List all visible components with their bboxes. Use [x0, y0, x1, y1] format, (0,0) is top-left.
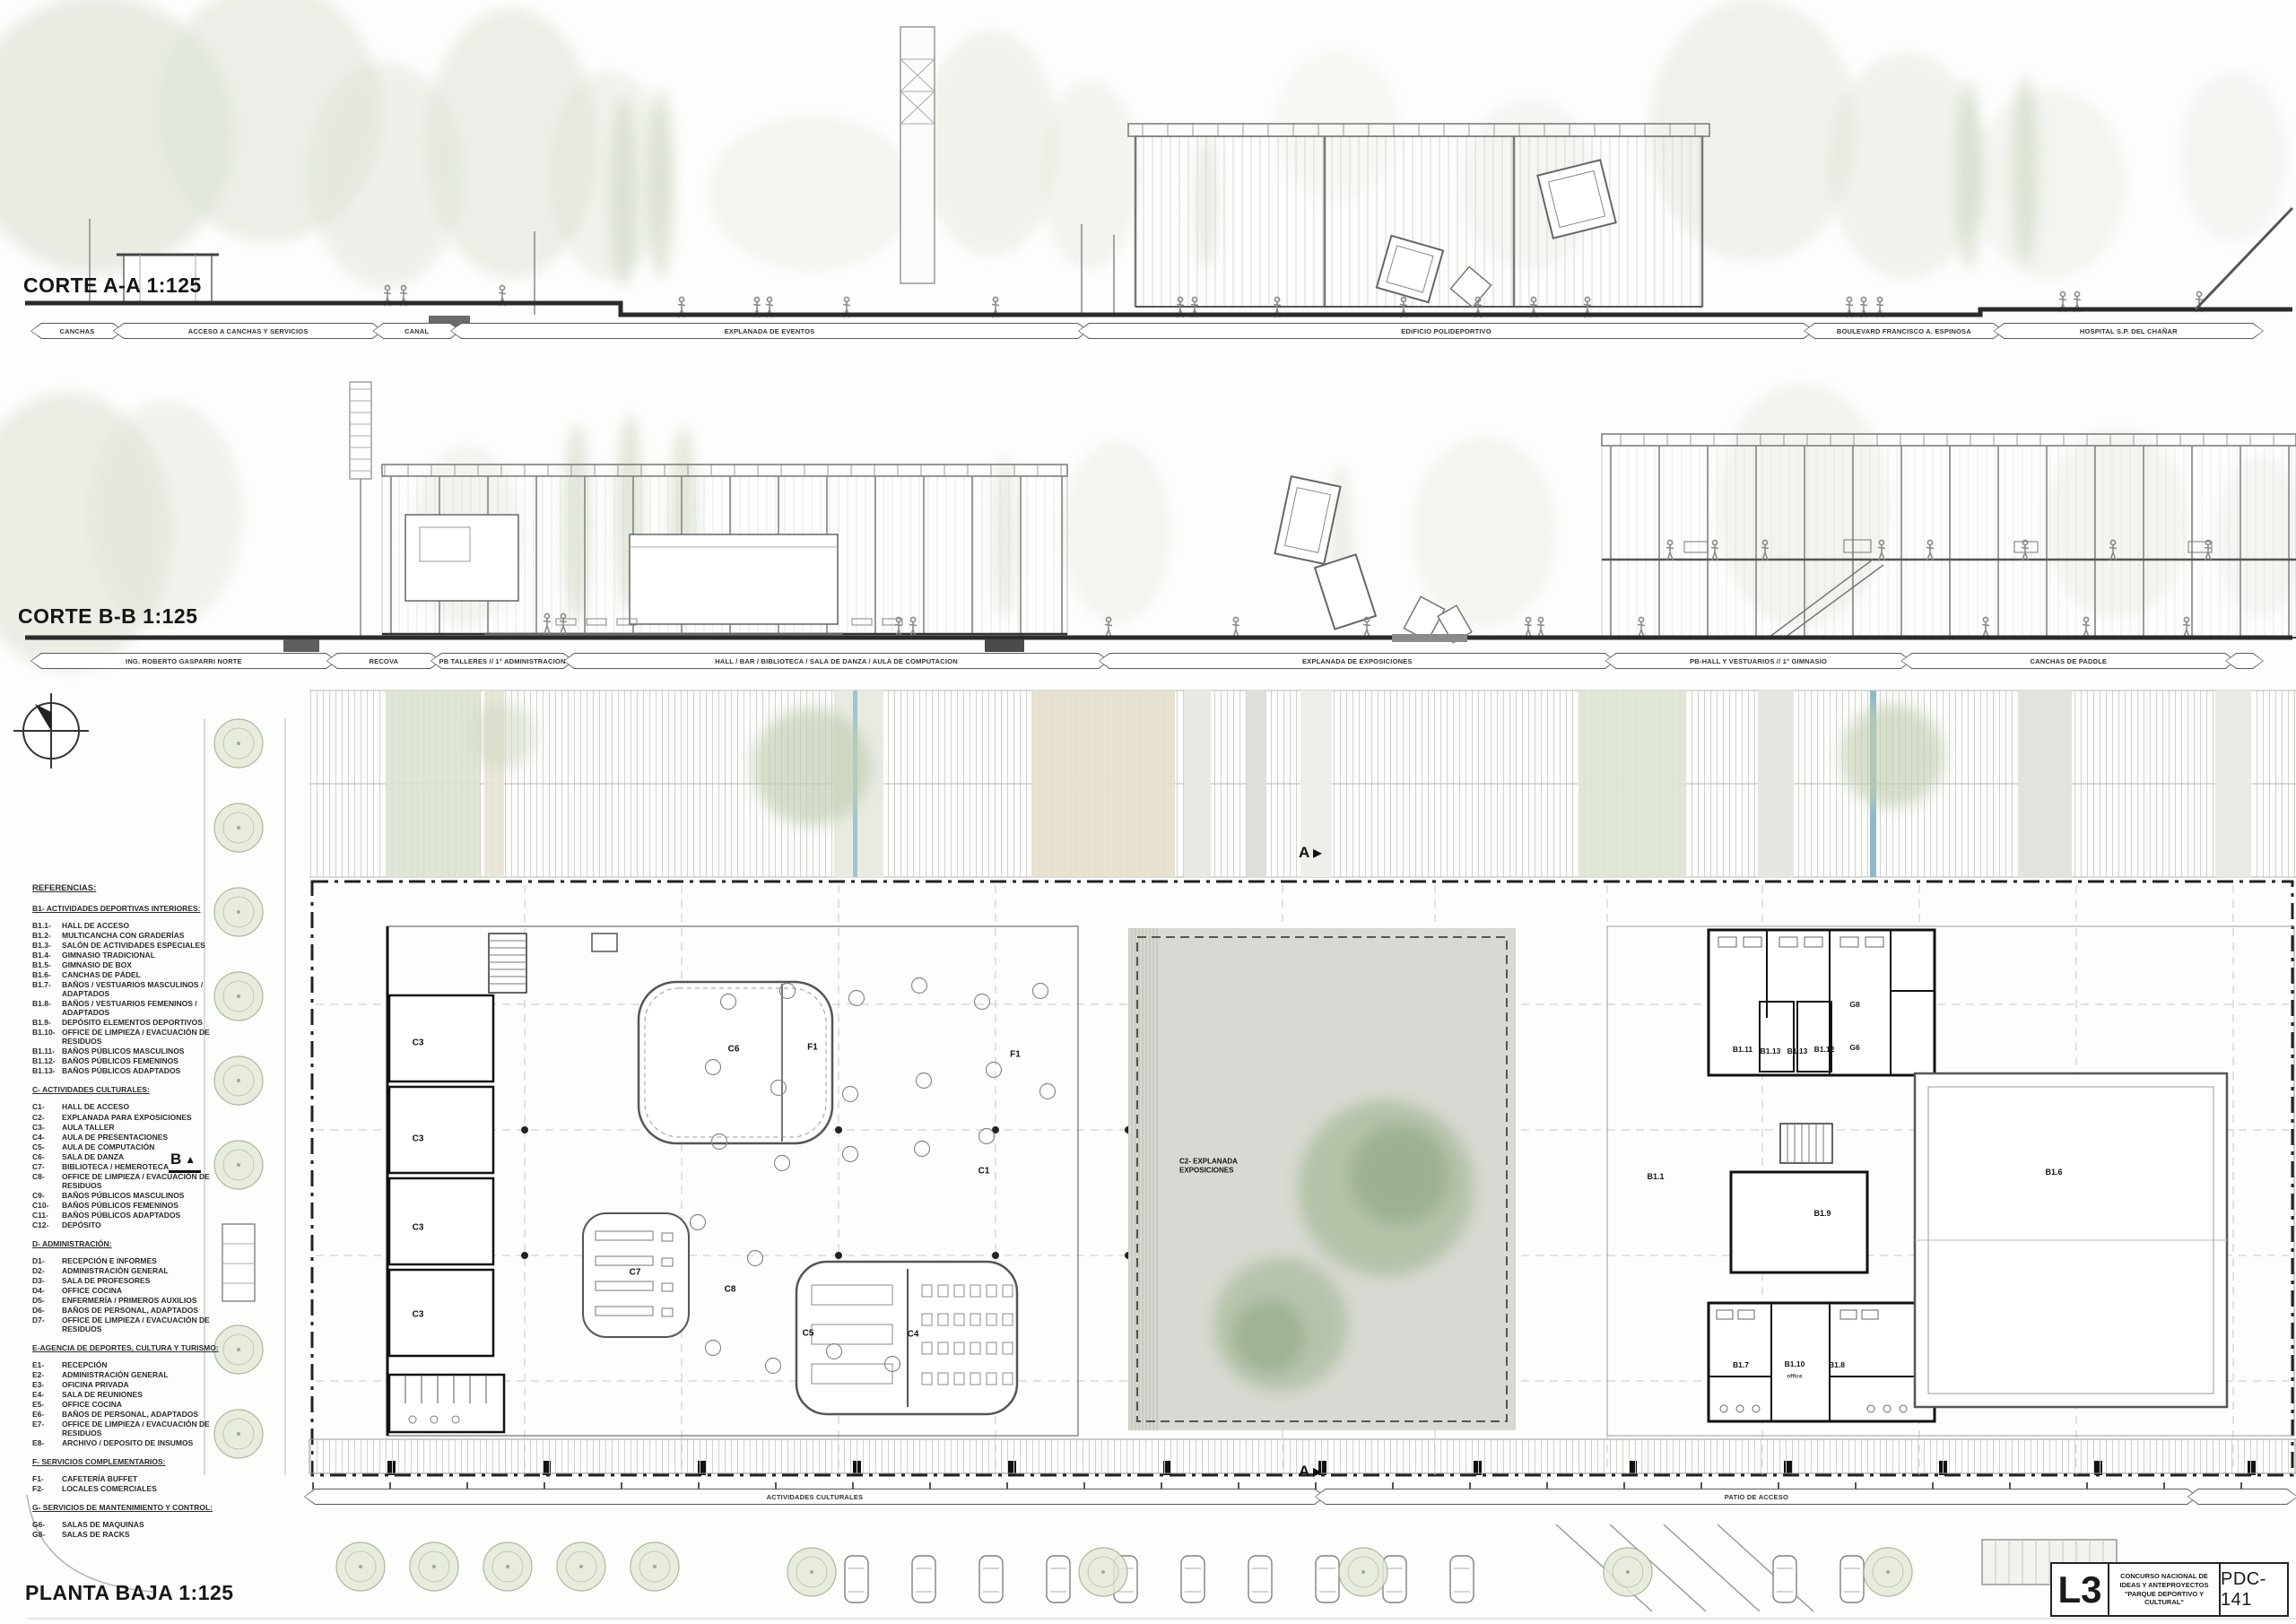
corte-b-drawing [0, 357, 2296, 687]
legend-line: E5-OFFICE COCINA [32, 1400, 222, 1409]
cut-direction-icon: ▶ [1313, 847, 1321, 858]
strip-segment: CANCHAS DE PADDLE [1900, 653, 2236, 669]
sheet-code: L3 [2052, 1564, 2109, 1615]
section-planta-baja: C3C3C3C3C6F1F1C1C7C8C5C4C2- EXPLANADA EX… [0, 686, 2296, 1624]
legend-line: B1.10-OFFICE DE LIMPIEZA / EVACUACIÓN DE… [32, 1028, 222, 1046]
canal-cut-2 [985, 639, 1024, 652]
legend-line: G- SERVICIOS DE MANTENIMIENTO Y CONTROL: [32, 1503, 222, 1512]
corte-b-strip: ING. ROBERTO GASPARRI NORTERECOVAPB TALL… [36, 653, 2258, 669]
plan-strip: ACTIVIDADES CULTURALESPATIO DE ACCESO [309, 1489, 2292, 1505]
sheet-number: PDC-141 [2221, 1564, 2287, 1615]
legend-line: C7-BIBLIOTECA / HEMEROTECA [32, 1162, 222, 1171]
legend-line: B1.4-GIMNASIO TRADICIONAL [32, 951, 222, 960]
legend-line: C11-BAÑOS PÚBLICOS ADAPTADOS [32, 1211, 222, 1220]
corte-a-drawing [0, 0, 2296, 355]
legend-line: E-AGENCIA DE DEPORTES, CULTURA Y TURISMO… [32, 1343, 222, 1352]
legend-line: C6-SALA DE DANZA [32, 1152, 222, 1161]
legend-line: G8-SALAS DE RACKS [32, 1530, 222, 1539]
strip-segment: PB TALLERES // 1° ADMINISTRACION [430, 653, 574, 669]
legend-line: E4-SALA DE REUNIONES [32, 1390, 222, 1399]
strip-segment [2225, 653, 2264, 669]
legend-line: C2-EXPLANADA PARA EXPOSICIONES [32, 1113, 222, 1122]
strip-segment: CANAL [372, 323, 461, 339]
section-cut-marker: A▶ [1299, 844, 1322, 862]
legend-line: C12-DEPÓSITO [32, 1220, 222, 1229]
corte-b-title: CORTE B-B 1:125 [18, 604, 197, 629]
strip-segment: ACCESO A CANCHAS Y SERVICIOS [113, 323, 383, 339]
planta-baja-title: PLANTA BAJA 1:125 [25, 1581, 234, 1605]
title-block: L3 CONCURSO NACIONAL DE IDEAS Y ANTEPROY… [2050, 1562, 2289, 1617]
legend-line: D2-ADMINISTRACIÓN GENERAL [32, 1266, 222, 1275]
legend-line: B1.8-BAÑOS / VESTUARIOS FEMENINOS / ADAP… [32, 999, 222, 1017]
cut-direction-icon: ▶ [1313, 1466, 1321, 1477]
legend-line: D5-ENFERMERÍA / PRIMEROS AUXILIOS [32, 1296, 222, 1305]
legend-line: D3-SALA DE PROFESORES [32, 1276, 222, 1285]
legend-line: REFERENCIAS: [32, 883, 222, 893]
section-corte-b: CORTE B-B 1:125 ING. ROBERTO GASPARRI NO… [0, 357, 2296, 687]
legend-line: C10-BAÑOS PÚBLICOS FEMENINOS [32, 1201, 222, 1210]
legend-line: B1.2-MULTICANCHA CON GRADERÍAS [32, 931, 222, 940]
legend-line: E2-ADMINISTRACIÓN GENERAL [32, 1370, 222, 1379]
pavilion-deportivo [1602, 434, 2296, 638]
strip-segment: CANCHAS [30, 323, 124, 339]
legend-line: F- SERVICIOS COMPLEMENTARIOS: [32, 1457, 222, 1466]
canal-cut [283, 639, 319, 652]
strip-segment: BOULEVARD FRANCISCO A. ESPINOSA [1804, 323, 2004, 339]
strip-segment: RECOVA [326, 653, 441, 669]
strip-segment: PB-HALL Y VESTUARIOS // 1° GIMNASIO [1605, 653, 1912, 669]
legend-line: D1-RECEPCIÓN E INFORMES [32, 1256, 222, 1265]
legend-line: B1.6-CANCHAS DE PÁDEL [32, 970, 222, 979]
section-corte-a: CORTE A-A 1:125 CANCHASACCESO A CANCHAS … [0, 0, 2296, 355]
legend-line: B1- ACTIVIDADES DEPORTIVAS INTERIORES: [32, 904, 222, 913]
legend-line: C5-AULA DE COMPUTACIÓN [32, 1142, 222, 1151]
legend-line: B1.11-BAÑOS PÚBLICOS MASCULINOS [32, 1046, 222, 1055]
legend-line: F2-LOCALES COMERCIALES [32, 1484, 222, 1493]
section-markers: A▶A▶B▲ [0, 686, 2296, 1624]
legend-line: D- ADMINISTRACIÓN: [32, 1239, 222, 1248]
strip-segment: EXPLANADA DE EXPOSICIONES [1099, 653, 1616, 669]
legend-line: C4-AULA DE PRESENTACIONES [32, 1133, 222, 1142]
legend-line: B1.13-BAÑOS PÚBLICOS ADAPTADOS [32, 1066, 222, 1075]
strip-segment: EXPLANADA DE EVENTOS [450, 323, 1089, 339]
legend-line: B1.12-BAÑOS PÚBLICOS FEMENINOS [32, 1056, 222, 1065]
legend-line: G6-SALAS DE MAQUINAS [32, 1520, 222, 1529]
legend-line: C1-HALL DE ACCESO [32, 1102, 222, 1111]
legend-line: D7-OFFICE DE LIMPIEZA / EVACUACIÓN DE RE… [32, 1316, 222, 1333]
legend-line: B1.7-BAÑOS / VESTUARIOS MASCULINOS / ADA… [32, 980, 222, 998]
strip-segment [2187, 1489, 2296, 1505]
strip-segment: HALL / BAR / BIBLIOTECA / SALA DE DANZA … [563, 653, 1109, 669]
project-title: CONCURSO NACIONAL DE IDEAS Y ANTEPROYECT… [2109, 1564, 2221, 1615]
legend-line: E8-ARCHIVO / DEPOSITO DE INSUMOS [32, 1438, 222, 1447]
section-cut-marker: A▶ [1299, 1463, 1322, 1481]
legend-line: D6-BAÑOS DE PERSONAL, ADAPTADOS [32, 1306, 222, 1315]
strip-segment: EDIFICIO POLIDEPORTIVO [1078, 323, 1814, 339]
legend: REFERENCIAS:B1- ACTIVIDADES DEPORTIVAS I… [32, 883, 222, 1540]
legend-line: F1-CAFETERÍA BUFFET [32, 1474, 222, 1483]
strip-segment: ING. ROBERTO GASPARRI NORTE [30, 653, 337, 669]
tower [900, 27, 935, 283]
corte-a-title: CORTE A-A 1:125 [23, 274, 202, 298]
legend-line: E1-RECEPCIÓN [32, 1360, 222, 1369]
drawing-sheet: CORTE A-A 1:125 CANCHASACCESO A CANCHAS … [0, 0, 2296, 1624]
legend-line: B1.5-GIMNASIO DE BOX [32, 960, 222, 969]
legend-line: E3-OFICINA PRIVADA [32, 1380, 222, 1389]
strip-segment: ACTIVIDADES CULTURALES [304, 1489, 1326, 1505]
corte-a-strip: CANCHASACCESO A CANCHAS Y SERVICIOSCANAL… [36, 323, 2258, 339]
strip-segment: PATIO DE ACCESO [1315, 1489, 2198, 1505]
legend-line: B1.3-SALÓN DE ACTIVIDADES ESPECIALES [32, 941, 222, 950]
legend-line: E7-OFFICE DE LIMPIEZA / EVACUACIÓN DE RE… [32, 1420, 222, 1437]
legend-line: C- ACTIVIDADES CULTURALES: [32, 1085, 222, 1094]
paver-band [1392, 634, 1467, 642]
mast [350, 382, 371, 638]
legend-line: C3-AULA TALLER [32, 1123, 222, 1132]
legend-line: B1.9-DEPÓSITO ELEMENTOS DEPORTIVOS [32, 1018, 222, 1027]
legend-line: C9-BAÑOS PÚBLICOS MASCULINOS [32, 1191, 222, 1200]
legend-line: C8-OFFICE DE LIMPIEZA / EVACUACIÓN DE RE… [32, 1172, 222, 1190]
strip-segment: HOSPITAL S.P. DEL CHAÑAR [1994, 323, 2264, 339]
pavilion-poli [1128, 124, 1709, 308]
pavilion-cultural [382, 465, 1067, 634]
legend-line: D4-OFFICE COCINA [32, 1286, 222, 1295]
legend-line: B1.1-HALL DE ACCESO [32, 921, 222, 930]
legend-line: E6-BAÑOS DE PERSONAL, ADAPTADOS [32, 1410, 222, 1419]
